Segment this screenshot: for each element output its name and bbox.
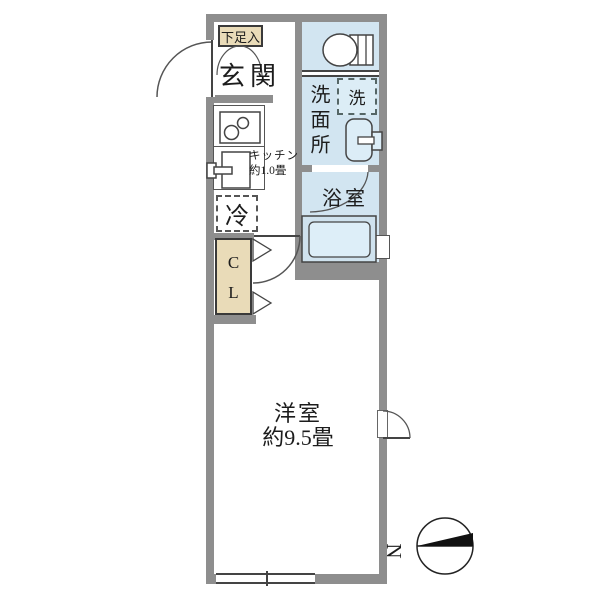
closet-fold-door-bottom-icon bbox=[253, 292, 271, 314]
main-room-size-text: 約9.5畳 bbox=[262, 420, 334, 452]
washer-label: 洗 bbox=[337, 78, 377, 115]
entrance-label: 玄関 bbox=[213, 58, 287, 90]
refrigerator-label: 冷 bbox=[216, 195, 258, 232]
closet-label: C L bbox=[215, 248, 252, 308]
floor-plan: 下足入 玄関 キッチン 約1.0畳 冷 C L 洗 洗面所 浴室 洋室 約9.5… bbox=[0, 0, 600, 600]
shoe-cabinet-label: 下足入 bbox=[218, 25, 263, 47]
refrigerator-label-text: 冷 bbox=[225, 196, 249, 231]
bathroom-label: 浴室 bbox=[313, 184, 377, 208]
toilet-bowl-icon bbox=[323, 34, 357, 66]
washroom-label: 洗面所 bbox=[306, 84, 330, 174]
bathtub-inner-icon bbox=[309, 222, 370, 257]
washer-label-text: 洗 bbox=[349, 84, 366, 109]
shoe-cabinet-label-text: 下足入 bbox=[221, 27, 260, 46]
plan-linework bbox=[0, 0, 600, 600]
bathroom-label-text: 浴室 bbox=[322, 182, 368, 211]
kitchen-label-line1: キッチン bbox=[249, 149, 305, 164]
closet-label-c: C bbox=[215, 248, 252, 278]
closet-fold-door-top-icon bbox=[253, 239, 271, 261]
compass-north-text: N bbox=[382, 543, 407, 558]
washbasin-faucet-spout-icon bbox=[358, 137, 374, 144]
entrance-label-text: 玄関 bbox=[219, 56, 281, 93]
entrance-door-arc-icon bbox=[157, 42, 212, 97]
closet-label-l: L bbox=[215, 278, 252, 308]
room-door-arc-icon bbox=[383, 411, 410, 438]
kitchen-label: キッチン 約1.0畳 bbox=[249, 149, 305, 181]
washroom-label-text: 洗面所 bbox=[307, 84, 329, 159]
sink-faucet-spout-icon bbox=[214, 167, 232, 174]
main-room-size-label: 約9.5畳 bbox=[228, 423, 368, 449]
kitchen-label-line2: 約1.0畳 bbox=[249, 164, 305, 179]
compass-north-label: N bbox=[381, 538, 407, 564]
